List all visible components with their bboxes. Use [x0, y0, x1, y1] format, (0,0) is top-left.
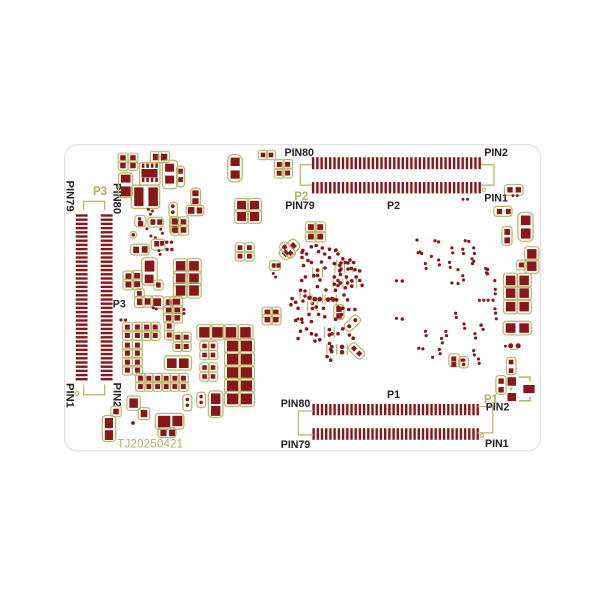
svg-text:PIN2: PIN2 — [484, 147, 508, 159]
svg-text:PIN79: PIN79 — [281, 439, 311, 451]
svg-text:PIN80: PIN80 — [285, 147, 315, 159]
svg-text:PIN1: PIN1 — [63, 383, 75, 408]
svg-text:P3: P3 — [113, 299, 126, 311]
svg-text:P1: P1 — [484, 394, 499, 406]
svg-text:PIN1: PIN1 — [485, 438, 509, 450]
svg-text:P2: P2 — [387, 200, 400, 212]
svg-text:P1: P1 — [387, 389, 400, 401]
svg-text:PIN79: PIN79 — [63, 181, 75, 212]
svg-text:PIN79: PIN79 — [285, 200, 315, 212]
svg-text:PIN80: PIN80 — [281, 398, 311, 410]
svg-text:TJ20250421: TJ20250421 — [117, 439, 183, 451]
svg-text:P3: P3 — [93, 186, 107, 198]
svg-text:PIN2: PIN2 — [111, 383, 123, 408]
svg-text:PIN80: PIN80 — [111, 183, 123, 214]
